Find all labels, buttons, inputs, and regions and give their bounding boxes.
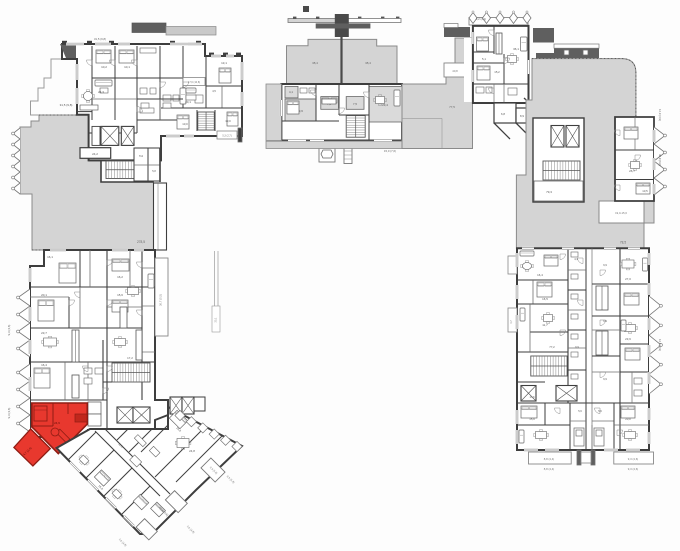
svg-text:278,5: 278,5 [137,240,145,244]
svg-text:30,9 (6,0): 30,9 (6,0) [658,154,662,166]
svg-text:19,0-15,6: 19,0-15,6 [615,211,627,215]
svg-text:8,9: 8,9 [520,114,524,118]
svg-text:15,6: 15,6 [117,293,123,297]
svg-text:5,6: 5,6 [578,410,582,413]
svg-text:6,9: 6,9 [603,263,607,267]
svg-text:12,9 (3,9): 12,9 (3,9) [658,109,662,121]
svg-text:23,0: 23,0 [625,417,631,421]
svg-text:8,2 (4,1): 8,2 (4,1) [476,17,486,21]
svg-text:17,6 (10,8): 17,6 (10,8) [188,81,200,84]
svg-text:79,3: 79,3 [546,190,552,194]
svg-text:6,9: 6,9 [575,345,579,349]
svg-text:13,1: 13,1 [221,61,227,65]
svg-text:9,3 (4,6): 9,3 (4,6) [7,325,11,336]
svg-text:20,1: 20,1 [41,293,47,297]
svg-text:5,3 (2,7): 5,3 (2,7) [222,135,231,138]
svg-text:23,7: 23,7 [41,331,47,335]
svg-text:9,3 (4,6): 9,3 (4,6) [628,467,638,471]
svg-text:15,9: 15,9 [529,417,535,421]
svg-text:5,1: 5,1 [482,57,486,61]
svg-text:24,8: 24,8 [189,449,195,453]
svg-text:17,2: 17,2 [127,356,133,360]
svg-text:Г12: Г12 [139,155,144,158]
svg-text:6,8: 6,8 [501,112,505,116]
svg-text:24,9: 24,9 [54,421,60,425]
svg-text:16,4: 16,4 [41,363,47,367]
svg-text:36,7 (5,5): 36,7 (5,5) [159,294,163,306]
svg-text:35,1: 35,1 [215,317,218,322]
svg-text:40,8: 40,8 [452,69,458,73]
svg-text:36,1: 36,1 [513,47,519,51]
svg-text:31,5 (9,8): 31,5 (9,8) [60,103,73,107]
svg-text:16,5: 16,5 [542,297,548,301]
svg-text:11,7: 11,7 [542,323,548,327]
svg-text:24,3: 24,3 [98,90,104,94]
svg-text:12,9 (3,9): 12,9 (3,9) [658,339,662,351]
svg-text:38,4: 38,4 [312,61,318,65]
svg-text:23,6: 23,6 [625,337,631,341]
svg-text:78,5: 78,5 [620,241,626,245]
svg-text:15,2: 15,2 [494,70,500,74]
svg-text:7,5: 7,5 [353,102,357,106]
svg-text:13,5: 13,5 [642,189,648,193]
svg-text:38,4: 38,4 [365,61,371,65]
svg-text:20,1: 20,1 [185,100,191,104]
svg-text:26,7: 26,7 [629,169,635,173]
svg-text:4,1: 4,1 [289,90,293,94]
svg-text:9,3 (4,6): 9,3 (4,6) [628,457,638,461]
svg-text:8,8 (4,4): 8,8 (4,4) [544,467,554,471]
svg-text:16,2: 16,2 [117,275,123,279]
svg-text:24,2: 24,2 [92,152,98,156]
svg-text:15,0 (7,6): 15,0 (7,6) [384,149,396,153]
svg-text:6,9: 6,9 [603,377,607,381]
svg-text:27,0: 27,0 [625,277,631,281]
svg-text:77,5: 77,5 [449,105,455,109]
svg-text:8,8 (4,4): 8,8 (4,4) [544,457,554,461]
svg-text:5,8: 5,8 [152,170,156,173]
svg-text:5,6: 5,6 [598,410,602,413]
svg-text:10,2: 10,2 [101,65,107,69]
svg-text:31,5 (9,8): 31,5 (9,8) [94,37,106,41]
svg-text:13,0: 13,0 [182,122,188,126]
svg-text:4,5: 4,5 [212,89,216,93]
svg-text:17,6: 17,6 [529,395,535,399]
svg-text:13,0: 13,0 [225,119,231,123]
svg-text:10,1: 10,1 [124,65,130,69]
svg-text:16,1: 16,1 [47,255,53,259]
svg-text:9,3 (4,6): 9,3 (4,6) [7,408,11,419]
svg-text:77,2: 77,2 [549,345,555,349]
svg-text:16,4: 16,4 [537,273,543,277]
